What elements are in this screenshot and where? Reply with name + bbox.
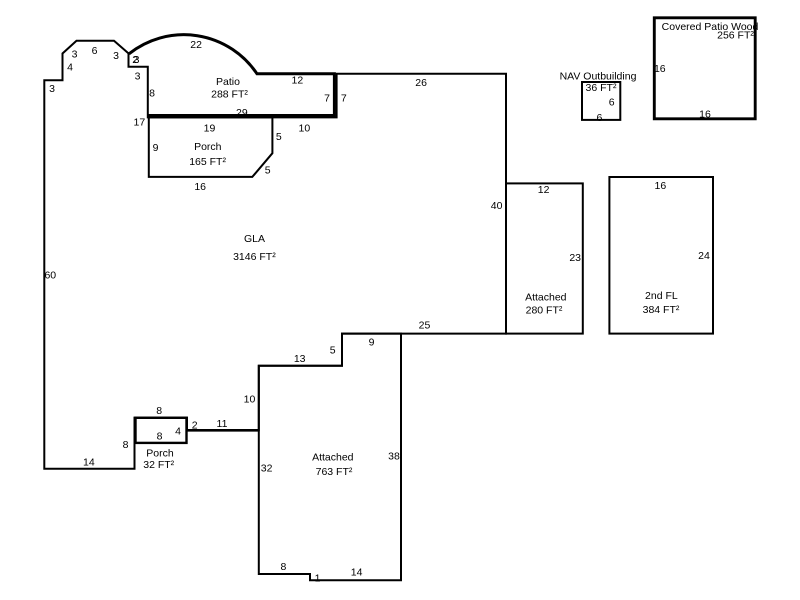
svg-text:6: 6 <box>609 97 615 109</box>
svg-text:6: 6 <box>596 112 602 124</box>
svg-text:Attached: Attached <box>312 452 354 464</box>
svg-text:8: 8 <box>149 88 155 100</box>
svg-text:5: 5 <box>265 165 271 177</box>
svg-text:16: 16 <box>194 181 206 193</box>
svg-text:3: 3 <box>113 50 119 62</box>
svg-text:40: 40 <box>491 200 503 212</box>
svg-text:3: 3 <box>135 71 141 83</box>
svg-text:280 FT²: 280 FT² <box>526 305 563 317</box>
svg-text:3: 3 <box>49 83 55 95</box>
svg-text:763 FT²: 763 FT² <box>316 466 353 478</box>
svg-text:288 FT²: 288 FT² <box>211 88 248 100</box>
svg-text:24: 24 <box>698 250 710 262</box>
svg-text:8: 8 <box>157 431 163 443</box>
svg-text:16: 16 <box>699 109 711 121</box>
svg-text:32 FT²: 32 FT² <box>143 459 174 471</box>
svg-text:7: 7 <box>341 92 347 104</box>
svg-text:3146 FT²: 3146 FT² <box>233 251 276 263</box>
svg-text:32: 32 <box>261 462 273 474</box>
svg-text:2nd FL: 2nd FL <box>645 290 678 302</box>
svg-text:4: 4 <box>175 425 181 437</box>
svg-text:10: 10 <box>299 123 311 135</box>
svg-text:17: 17 <box>134 117 146 129</box>
svg-text:2: 2 <box>192 419 198 431</box>
svg-text:22: 22 <box>190 39 202 51</box>
svg-text:12: 12 <box>538 184 550 196</box>
svg-text:11: 11 <box>217 418 228 430</box>
svg-text:165 FT²: 165 FT² <box>189 156 226 168</box>
svg-text:9: 9 <box>153 142 159 154</box>
svg-text:5: 5 <box>330 345 336 357</box>
svg-text:9: 9 <box>369 337 375 349</box>
svg-text:6: 6 <box>92 45 98 57</box>
svg-text:14: 14 <box>83 457 95 469</box>
svg-text:16: 16 <box>655 180 667 192</box>
svg-text:3: 3 <box>134 54 140 66</box>
svg-text:384 FT²: 384 FT² <box>643 304 680 316</box>
svg-text:60: 60 <box>44 270 56 282</box>
svg-text:Porch: Porch <box>194 141 222 153</box>
svg-text:NAV Outbuilding: NAV Outbuilding <box>560 71 637 83</box>
svg-text:Porch: Porch <box>146 447 174 459</box>
svg-text:26: 26 <box>415 77 427 89</box>
svg-text:36 FT²: 36 FT² <box>586 82 617 94</box>
svg-text:7: 7 <box>324 92 330 104</box>
svg-text:3: 3 <box>72 49 78 61</box>
svg-text:16: 16 <box>654 63 666 75</box>
svg-text:256 FT²: 256 FT² <box>717 30 754 42</box>
svg-text:29: 29 <box>236 107 248 119</box>
svg-text:GLA: GLA <box>244 233 265 245</box>
svg-text:25: 25 <box>419 320 431 332</box>
svg-text:10: 10 <box>244 394 256 406</box>
svg-text:14: 14 <box>351 566 363 578</box>
svg-text:Patio: Patio <box>216 76 240 88</box>
svg-text:4: 4 <box>67 61 73 73</box>
svg-text:23: 23 <box>569 252 581 264</box>
svg-text:8: 8 <box>280 561 286 573</box>
svg-text:1: 1 <box>315 573 321 585</box>
svg-text:12: 12 <box>292 75 304 87</box>
svg-text:8: 8 <box>156 405 162 417</box>
svg-text:13: 13 <box>294 353 306 365</box>
svg-text:Attached: Attached <box>525 292 567 304</box>
svg-text:8: 8 <box>123 439 129 451</box>
svg-text:5: 5 <box>276 131 282 143</box>
svg-text:38: 38 <box>388 451 400 463</box>
svg-text:19: 19 <box>204 123 216 135</box>
